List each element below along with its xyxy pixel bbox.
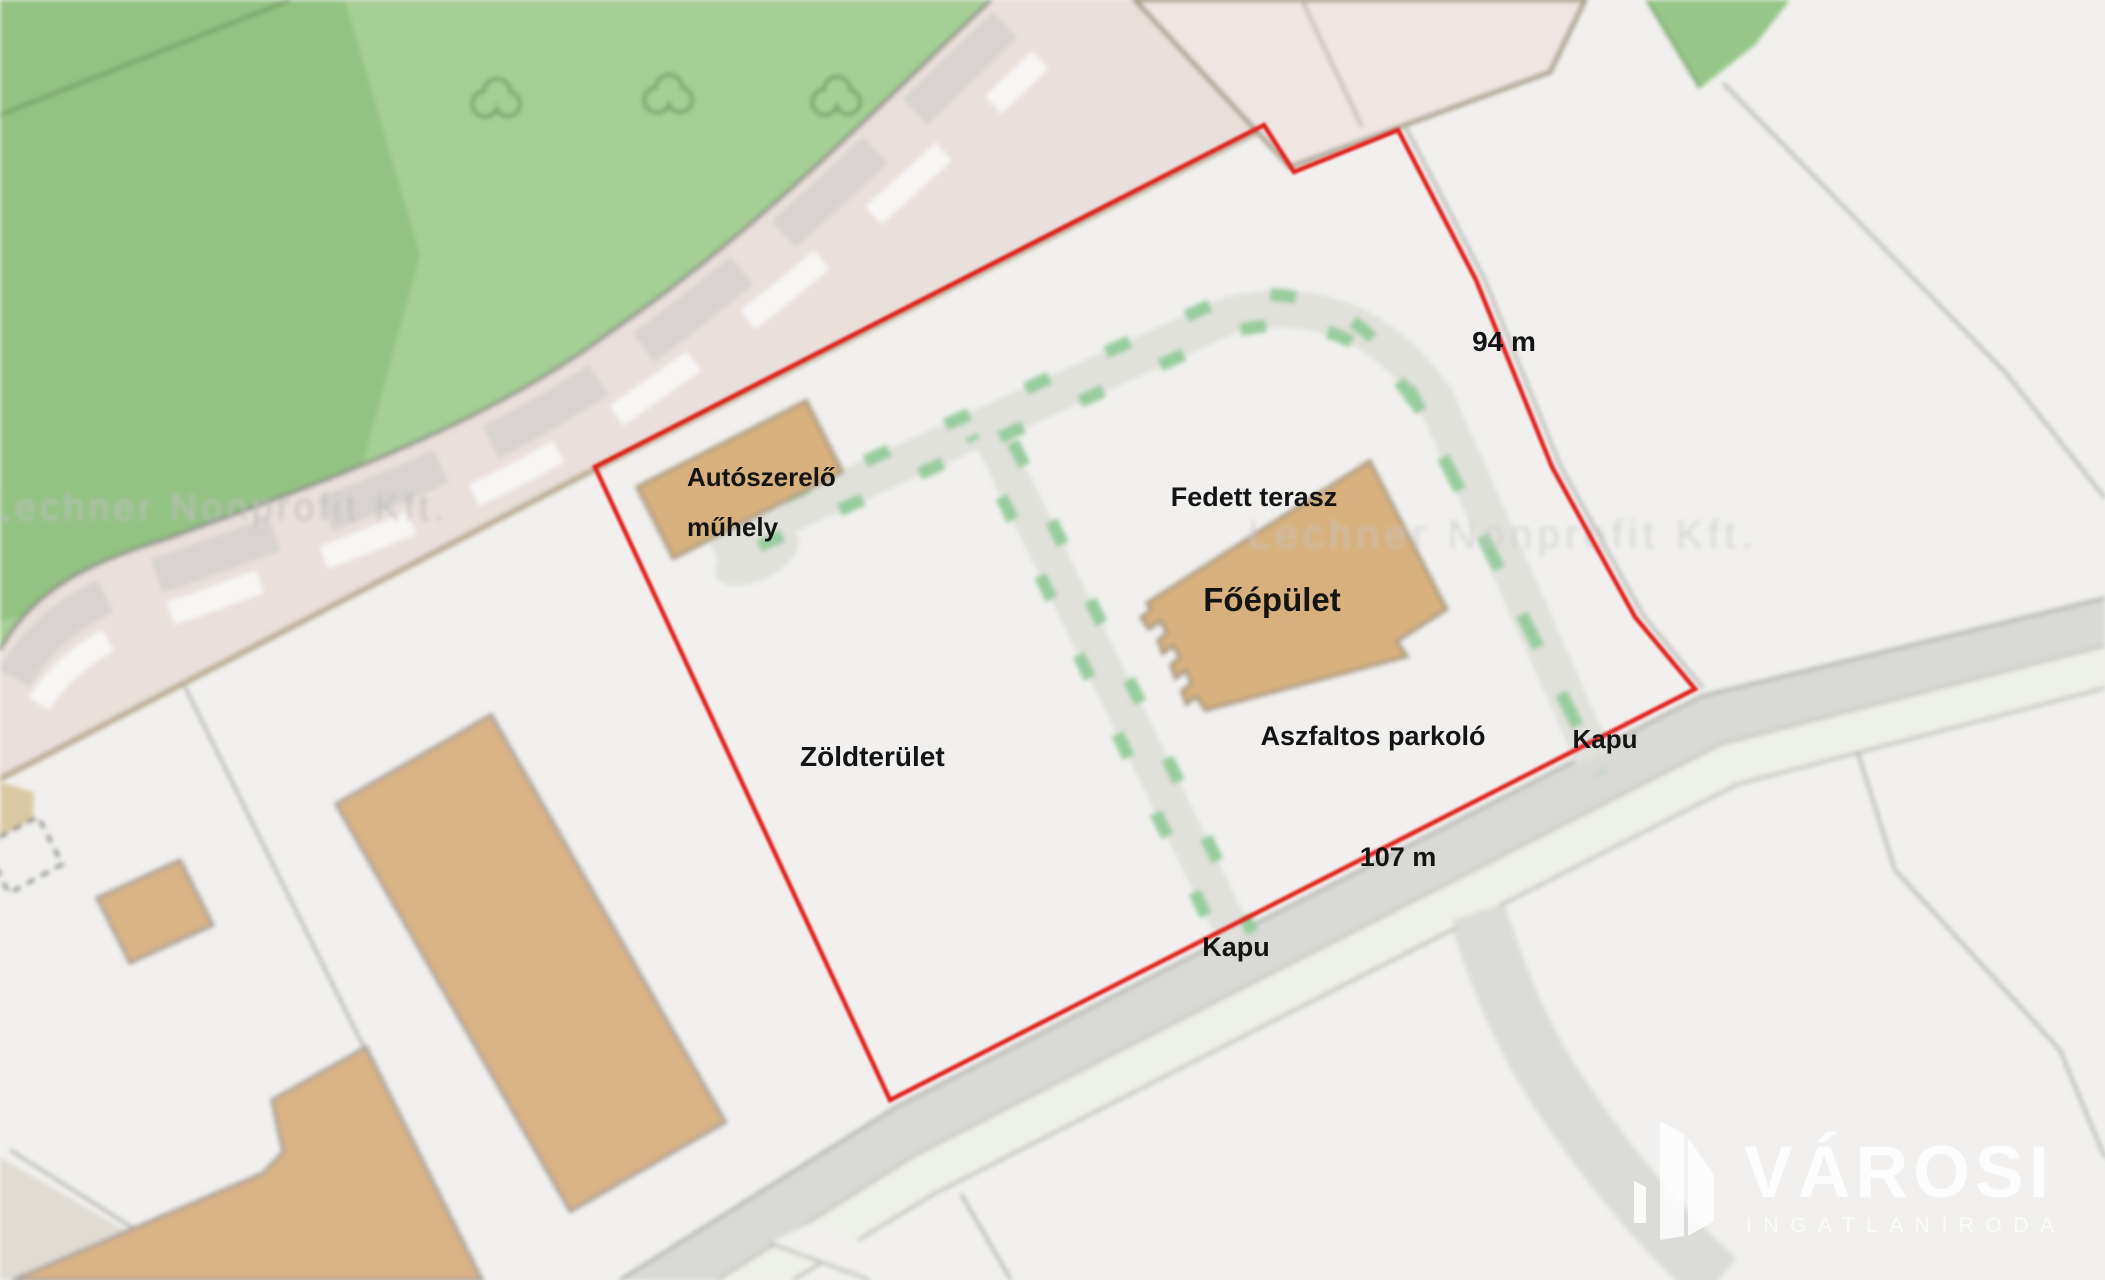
svg-text:Főépület: Főépület xyxy=(1203,581,1341,618)
svg-text:94 m: 94 m xyxy=(1472,326,1536,357)
svg-text:Kapu: Kapu xyxy=(1202,932,1270,962)
svg-text:INGATLANIRODA: INGATLANIRODA xyxy=(1746,1214,2065,1237)
svg-text:Fedett terasz: Fedett terasz xyxy=(1171,482,1338,512)
svg-text:Autószerelő: Autószerelő xyxy=(687,462,836,492)
svg-text:Lechner Nonprofit Kft.: Lechner Nonprofit Kft. xyxy=(0,487,448,529)
svg-text:VÁROSI: VÁROSI xyxy=(1744,1132,2054,1213)
svg-text:Zöldterület: Zöldterület xyxy=(800,741,945,772)
svg-text:Aszfaltos parkoló: Aszfaltos parkoló xyxy=(1260,721,1485,751)
svg-text:Lechner Nonprofit Kft.: Lechner Nonprofit Kft. xyxy=(1248,513,1758,557)
svg-text:Kapu: Kapu xyxy=(1573,724,1638,754)
svg-text:műhely: műhely xyxy=(687,512,779,542)
svg-text:107 m: 107 m xyxy=(1360,842,1437,872)
